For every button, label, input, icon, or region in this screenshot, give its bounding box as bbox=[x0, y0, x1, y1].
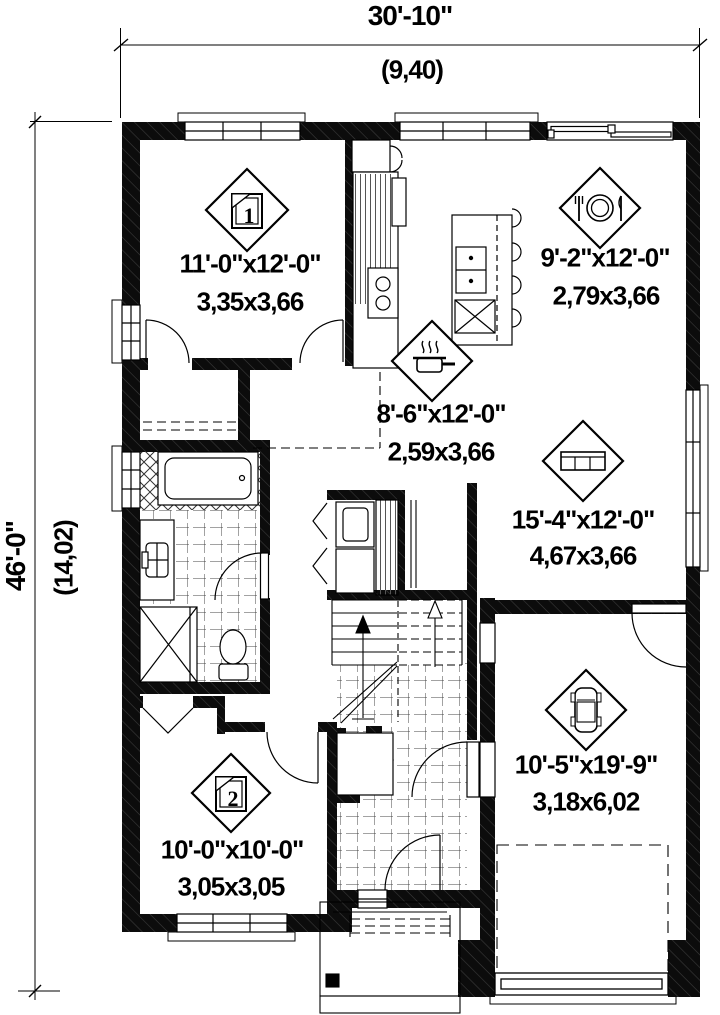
dining-plate-icon bbox=[560, 168, 640, 248]
dining-size-metric: 2,79x3,66 bbox=[553, 281, 660, 312]
dining-size-imperial: 9'-2"x12'-0" bbox=[540, 243, 669, 274]
laundry-bifold-doors bbox=[313, 503, 327, 584]
bedroom1-size-imperial: 11'-0"x12'-0" bbox=[179, 249, 320, 280]
living-size-metric: 4,67x3,66 bbox=[530, 541, 637, 572]
garage-size-imperial: 10'-5"x19'-9" bbox=[515, 750, 658, 781]
bedroom1-closet-door bbox=[146, 320, 189, 363]
overall-height-imperial: 46'-0" bbox=[0, 521, 32, 591]
entry-sidelight-window bbox=[358, 890, 387, 908]
bedroom1-top-window bbox=[185, 122, 300, 140]
entry-closet bbox=[337, 733, 393, 795]
bedroom1-door bbox=[300, 320, 343, 363]
living-right-window bbox=[686, 390, 700, 567]
island-sink bbox=[455, 300, 495, 333]
bathtub bbox=[158, 452, 258, 505]
refrigerator bbox=[352, 140, 402, 172]
bathroom-left-window bbox=[122, 452, 140, 508]
floor-plan: 30'-10" (9,40) 46'-0" (14,02) 1 2 11'-0"… bbox=[0, 0, 720, 1015]
car-icon bbox=[546, 670, 626, 750]
kitchen-size-imperial: 8'-6"x12'-0" bbox=[376, 399, 505, 430]
vanity-sink bbox=[140, 520, 174, 600]
bedroom2-size-metric: 3,05x3,05 bbox=[178, 872, 285, 903]
laundry-closet bbox=[336, 500, 398, 595]
wall-oven bbox=[392, 178, 406, 226]
bedroom1-left-window bbox=[122, 305, 140, 360]
overall-width-imperial: 30'-10" bbox=[368, 0, 453, 32]
overall-width-metric: (9,40) bbox=[381, 55, 443, 86]
island-stools bbox=[512, 209, 521, 327]
toilet bbox=[219, 630, 248, 680]
bedroom2-closet-bifold bbox=[143, 708, 193, 733]
bedroom2-bottom-window bbox=[177, 914, 287, 932]
bedroom2-number: 2 bbox=[228, 786, 239, 812]
dryer bbox=[336, 549, 374, 593]
kitchen-top-window bbox=[400, 122, 530, 140]
bedroom2-door bbox=[267, 732, 318, 783]
cooktop bbox=[368, 268, 398, 318]
garage-rear-door bbox=[632, 604, 686, 667]
kitchen-island bbox=[452, 215, 512, 345]
porch-post bbox=[326, 974, 339, 987]
bedroom1-size-metric: 3,35x3,66 bbox=[197, 287, 304, 318]
sofa-icon bbox=[543, 421, 623, 501]
shower bbox=[140, 607, 197, 682]
garage-size-metric: 3,18x6,02 bbox=[533, 787, 640, 818]
overall-height-metric: (14,02) bbox=[49, 520, 80, 595]
patio-sliding-door bbox=[547, 122, 673, 140]
kitchen-size-metric: 2,59x3,66 bbox=[388, 437, 495, 468]
living-size-imperial: 15'-4"x12'-0" bbox=[512, 505, 655, 536]
washer bbox=[336, 502, 374, 547]
bedroom2-size-imperial: 10'-0"x10'-0" bbox=[161, 835, 304, 866]
bedroom1-number: 1 bbox=[244, 203, 255, 229]
garage-door bbox=[495, 973, 668, 995]
garage-wall-niche bbox=[480, 623, 495, 663]
